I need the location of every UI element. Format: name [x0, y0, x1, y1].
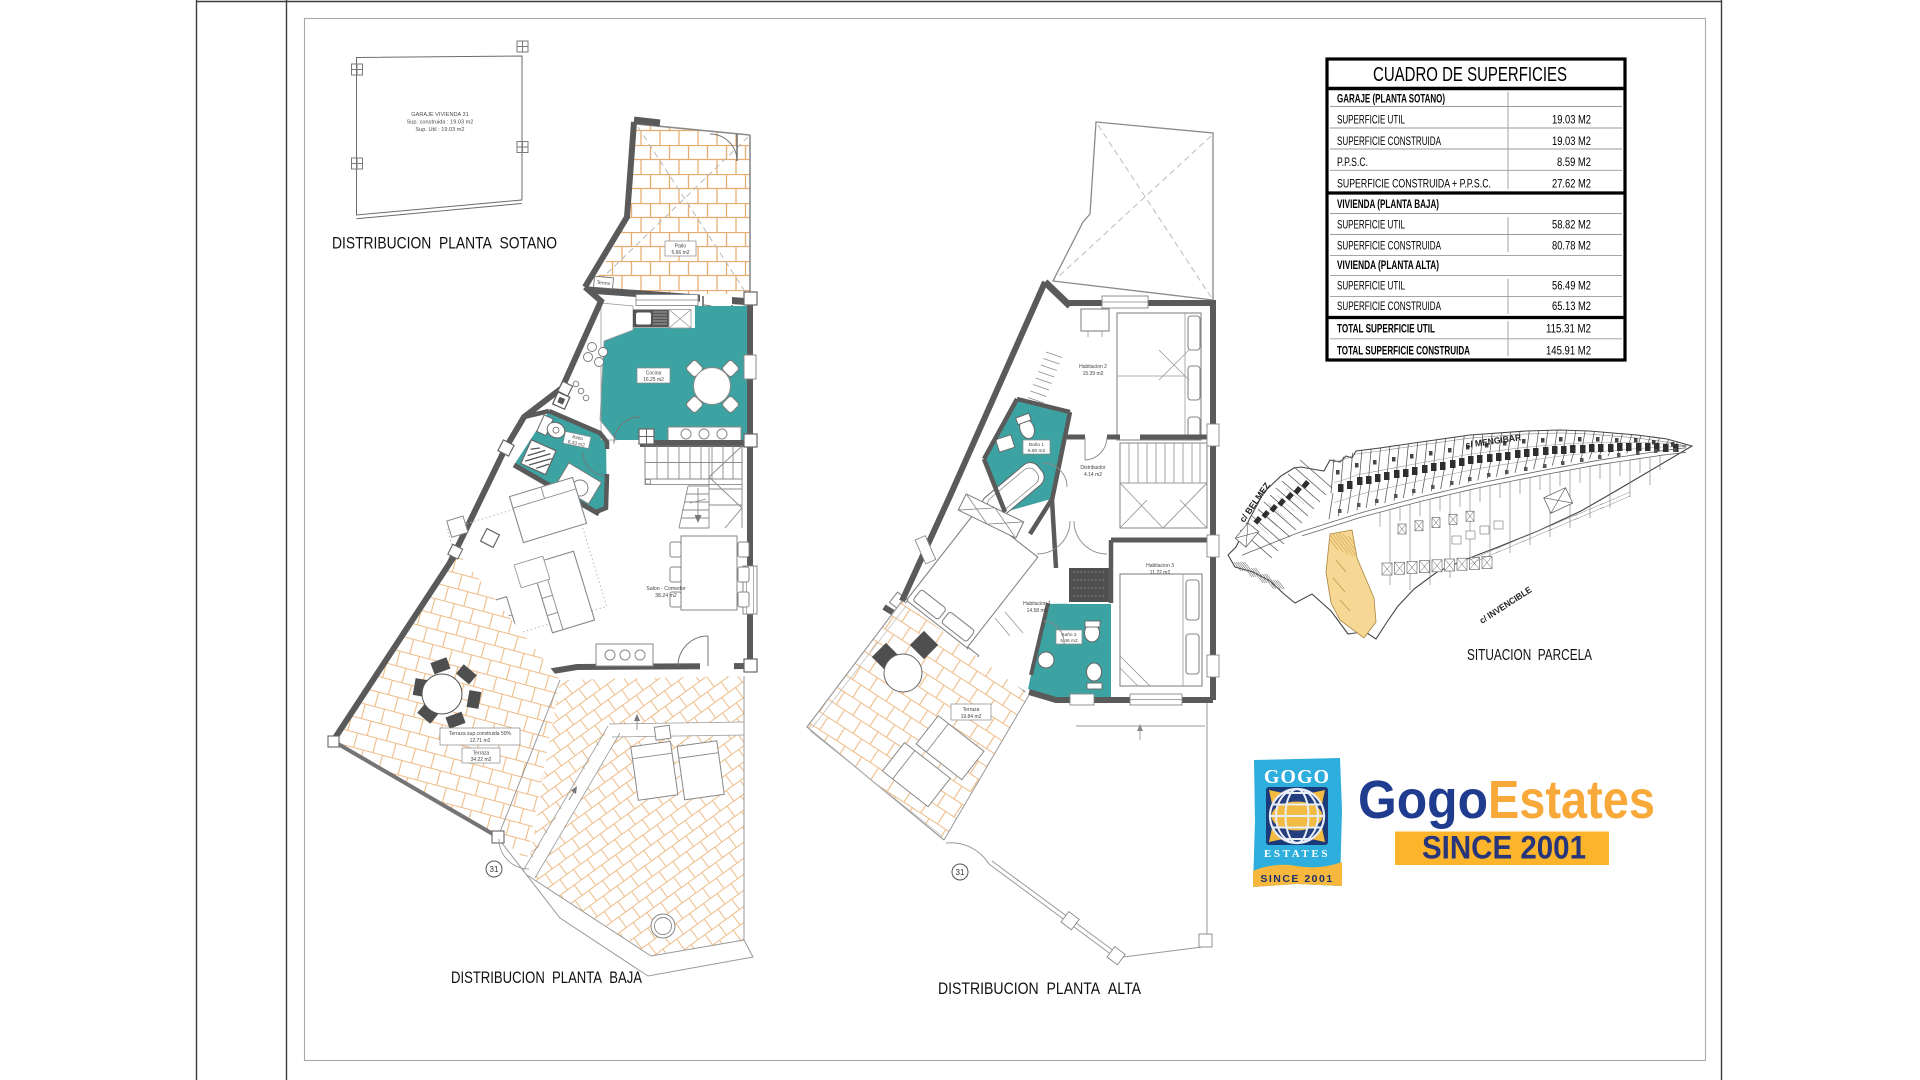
svg-text:Baño 1: Baño 1 [1029, 442, 1045, 448]
svg-text:Sup. Util : 19.03 m2: Sup. Util : 19.03 m2 [415, 127, 464, 133]
svg-text:19.03 M2: 19.03 M2 [1552, 113, 1591, 127]
svg-text:SUPERFICIE UTIL: SUPERFICIE UTIL [1337, 279, 1405, 293]
svg-text:16.25 m2: 16.25 m2 [643, 377, 664, 383]
svg-text:31: 31 [956, 868, 965, 877]
svg-text:SINCE 2001: SINCE 2001 [1260, 873, 1333, 885]
svg-text:5.46 m2: 5.46 m2 [1060, 638, 1078, 644]
svg-text:11.22 m2: 11.22 m2 [1150, 570, 1171, 576]
svg-text:VIVIENDA (PLANTA ALTA): VIVIENDA (PLANTA ALTA) [1337, 258, 1439, 272]
svg-text:Salon - Comedor: Salon - Comedor [646, 586, 685, 592]
svg-text:Gogo: Gogo [1358, 770, 1488, 830]
svg-text:P.P.S.C.: P.P.S.C. [1337, 155, 1368, 169]
svg-text:12.71 m2: 12.71 m2 [470, 738, 491, 744]
svg-text:15.39 m2: 15.39 m2 [1083, 371, 1104, 377]
svg-text:DISTRIBUCION PLANTA BAJA: DISTRIBUCION PLANTA BAJA [451, 968, 643, 987]
svg-text:8.59 M2: 8.59 M2 [1557, 155, 1591, 169]
svg-text:Habitacion 3: Habitacion 3 [1146, 563, 1174, 569]
svg-text:145.91 M2: 145.91 M2 [1546, 344, 1591, 358]
svg-text:c/ INVENCIBLE: c/ INVENCIBLE [1478, 585, 1534, 626]
svg-text:SUPERFICIE UTIL: SUPERFICIE UTIL [1337, 113, 1405, 127]
svg-text:SUPERFICIE CONSTRUIDA: SUPERFICIE CONSTRUIDA [1337, 299, 1441, 313]
svg-text:65.13 M2: 65.13 M2 [1552, 299, 1591, 313]
svg-text:GOGO: GOGO [1264, 766, 1330, 788]
svg-text:TOTAL SUPERFICIE CONSTRUIDA: TOTAL SUPERFICIE CONSTRUIDA [1337, 344, 1470, 358]
svg-text:SINCE 2001: SINCE 2001 [1422, 830, 1586, 866]
svg-text:14.58 m2: 14.58 m2 [1027, 608, 1048, 614]
svg-text:SUPERFICIE CONSTRUIDA: SUPERFICIE CONSTRUIDA [1337, 239, 1441, 253]
svg-text:27.62 M2: 27.62 M2 [1552, 177, 1591, 191]
svg-text:34.22 m2: 34.22 m2 [471, 757, 492, 763]
svg-text:Terraza: Terraza [963, 707, 980, 713]
svg-text:GARAJE (PLANTA SOTANO): GARAJE (PLANTA SOTANO) [1337, 92, 1445, 106]
svg-text:5.66 m2: 5.66 m2 [671, 250, 689, 256]
svg-text:Distribuidor: Distribuidor [1080, 465, 1106, 471]
svg-text:4.14 m2: 4.14 m2 [1084, 472, 1102, 478]
svg-text:TOTAL SUPERFICIE UTIL: TOTAL SUPERFICIE UTIL [1337, 322, 1435, 336]
svg-text:115.31 M2: 115.31 M2 [1546, 322, 1591, 336]
svg-text:GARAJE VIVIENDA 31: GARAJE VIVIENDA 31 [411, 112, 469, 118]
svg-text:DISTRIBUCION PLANTA ALTA: DISTRIBUCION PLANTA ALTA [938, 979, 1142, 998]
svg-text:Estates: Estates [1488, 770, 1655, 830]
svg-text:19.84 m2: 19.84 m2 [961, 714, 982, 720]
svg-text:38.24 m2: 38.24 m2 [655, 593, 677, 599]
svg-text:CUADRO DE SUPERFICIES: CUADRO DE SUPERFICIES [1373, 64, 1567, 86]
svg-text:Habitacion 1: Habitacion 1 [1023, 601, 1051, 607]
svg-text:Terraza: Terraza [473, 751, 490, 757]
svg-text:19.03 M2: 19.03 M2 [1552, 134, 1591, 148]
svg-text:Sup. construida : 19.03 m2: Sup. construida : 19.03 m2 [407, 120, 474, 126]
svg-text:DISTRIBUCION PLANTA SOTANO: DISTRIBUCION PLANTA SOTANO [332, 234, 557, 253]
svg-text:31: 31 [490, 865, 499, 874]
svg-text:ESTATES: ESTATES [1264, 848, 1330, 860]
svg-text:SITUACION PARCELA: SITUACION PARCELA [1467, 647, 1592, 664]
svg-text:58.82 M2: 58.82 M2 [1552, 218, 1591, 232]
svg-text:SUPERFICIE CONSTRUIDA + P.P.S.: SUPERFICIE CONSTRUIDA + P.P.S.C. [1337, 177, 1491, 191]
svg-text:Patio: Patio [675, 244, 687, 250]
svg-text:SUPERFICIE CONSTRUIDA: SUPERFICIE CONSTRUIDA [1337, 134, 1441, 148]
svg-text:56.49 M2: 56.49 M2 [1552, 279, 1591, 293]
svg-text:SUPERFICIE UTIL: SUPERFICIE UTIL [1337, 218, 1405, 232]
svg-text:Cocina: Cocina [646, 371, 662, 377]
svg-text:Habitacion 2: Habitacion 2 [1079, 364, 1107, 370]
svg-text:5.80 m2: 5.80 m2 [1028, 448, 1046, 454]
svg-text:Terraza sup.construida 50%: Terraza sup.construida 50% [449, 731, 512, 737]
svg-text:80.78 M2: 80.78 M2 [1552, 239, 1591, 253]
svg-text:Termo: Termo [596, 280, 611, 287]
svg-text:VIVIENDA (PLANTA BAJA): VIVIENDA (PLANTA BAJA) [1337, 197, 1439, 211]
